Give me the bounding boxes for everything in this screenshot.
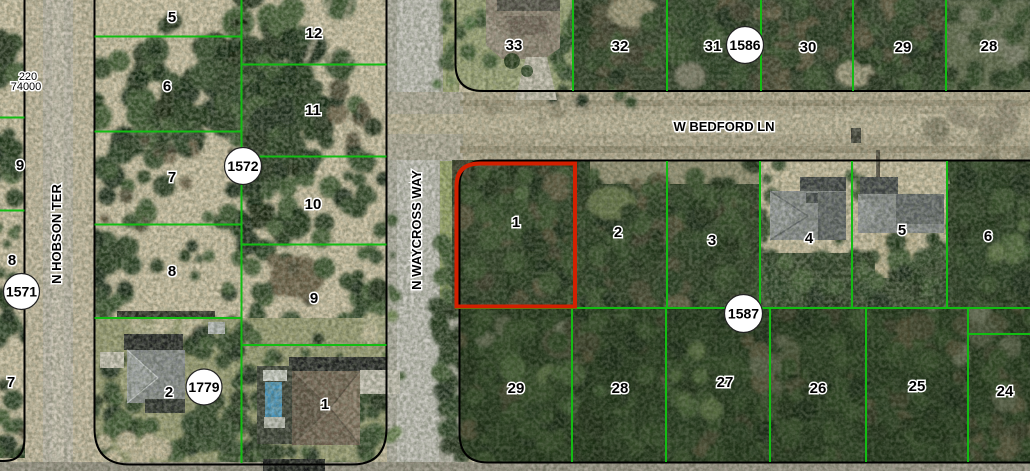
svg-text:1: 1 [321, 396, 329, 413]
svg-text:2: 2 [165, 384, 173, 401]
svg-text:10: 10 [305, 196, 322, 213]
svg-text:11: 11 [305, 102, 321, 119]
svg-text:28: 28 [981, 38, 998, 55]
svg-text:33: 33 [506, 37, 523, 54]
svg-text:25: 25 [909, 378, 926, 395]
svg-text:29: 29 [895, 39, 912, 56]
svg-text:1571: 1571 [6, 284, 37, 300]
svg-text:1779: 1779 [188, 379, 219, 395]
svg-text:4: 4 [805, 230, 814, 247]
svg-text:9: 9 [16, 157, 24, 174]
svg-text:7: 7 [7, 374, 15, 391]
svg-text:31: 31 [705, 38, 722, 55]
svg-text:6: 6 [984, 228, 992, 245]
svg-text:8: 8 [8, 252, 16, 269]
svg-text:2: 2 [614, 224, 622, 241]
svg-text:29: 29 [508, 380, 525, 397]
svg-text:24: 24 [997, 383, 1014, 400]
svg-text:26: 26 [810, 380, 827, 397]
svg-text:27: 27 [717, 374, 734, 391]
svg-text:8: 8 [168, 263, 176, 280]
svg-text:3: 3 [708, 232, 716, 249]
svg-text:12: 12 [306, 25, 323, 42]
svg-text:74000: 74000 [11, 81, 42, 93]
svg-text:7: 7 [168, 169, 176, 186]
svg-text:6: 6 [163, 78, 171, 95]
svg-text:5: 5 [898, 222, 906, 239]
svg-text:N WAYCROSS WAY: N WAYCROSS WAY [409, 170, 424, 290]
svg-text:32: 32 [612, 38, 629, 55]
svg-text:W BEDFORD LN: W BEDFORD LN [673, 119, 774, 134]
svg-text:5: 5 [168, 9, 176, 26]
svg-text:1587: 1587 [728, 306, 759, 322]
svg-text:9: 9 [310, 290, 318, 307]
svg-text:30: 30 [800, 39, 817, 56]
svg-text:28: 28 [612, 380, 629, 397]
svg-text:1586: 1586 [729, 37, 760, 53]
svg-text:1: 1 [512, 214, 520, 231]
svg-text:N HOBSON TER: N HOBSON TER [49, 184, 64, 284]
svg-text:1572: 1572 [227, 158, 258, 174]
